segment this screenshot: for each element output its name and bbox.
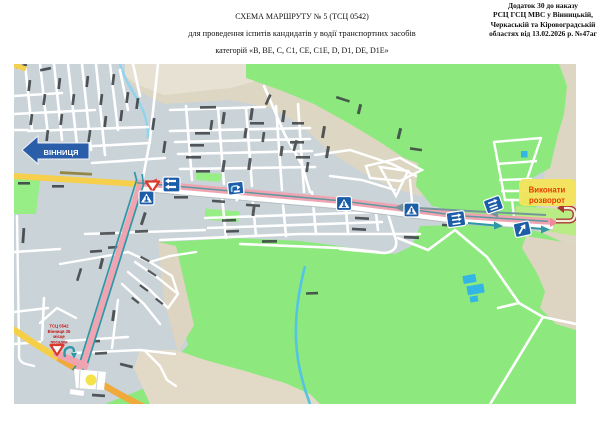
svg-text:розворот: розворот [529, 196, 565, 205]
svg-text:місце: місце [53, 334, 65, 339]
svg-text:Виконати: Виконати [529, 186, 566, 195]
svg-text:Вінниця 35: Вінниця 35 [48, 329, 71, 334]
svg-text:ВІННИЦЯ: ВІННИЦЯ [43, 148, 78, 157]
svg-text:ТСЦ 0542: ТСЦ 0542 [49, 324, 69, 329]
svg-text:посадки: посадки [50, 339, 67, 344]
